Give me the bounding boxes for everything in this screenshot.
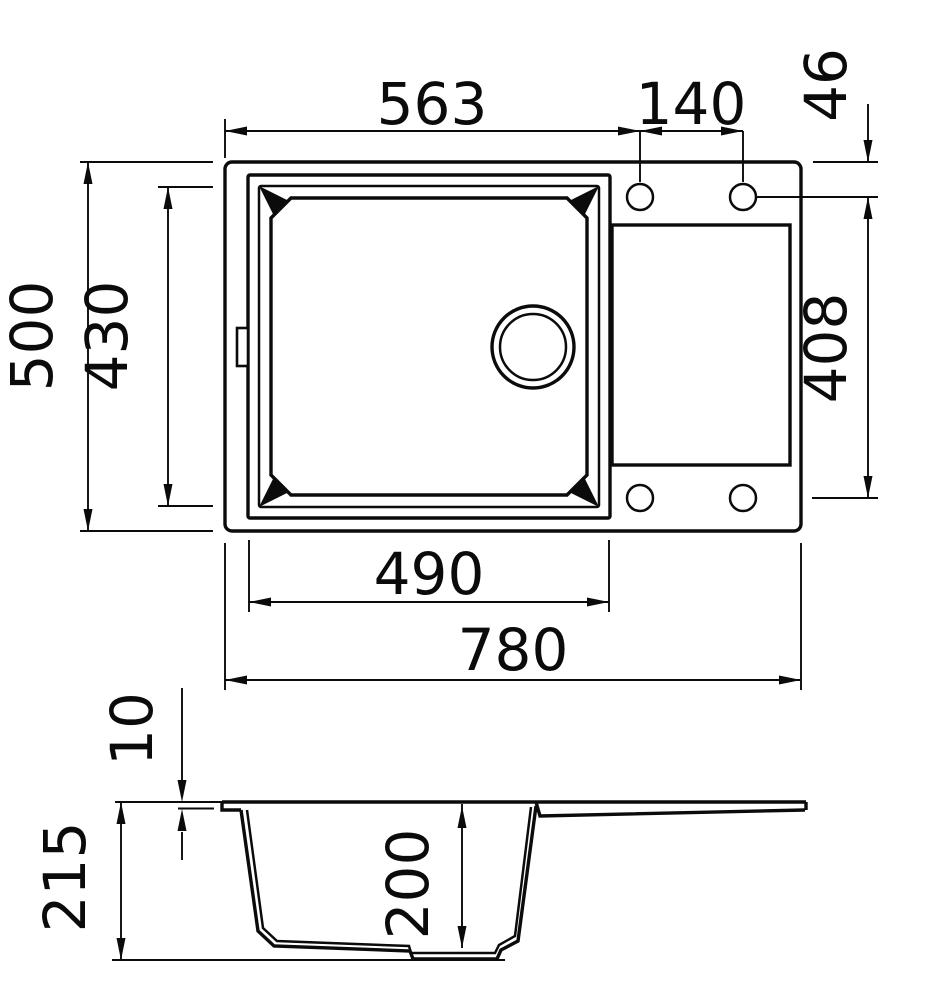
- drain-circle-inner: [500, 314, 566, 380]
- dim-10-arrow-down: [178, 780, 187, 802]
- dim-490-arrow-right: [587, 598, 609, 607]
- bowl-rim-outer: [248, 175, 610, 518]
- dim-215-arrow-down: [117, 938, 126, 960]
- dim-780-arrow-left: [225, 676, 247, 685]
- dim-200-arrow-down: [458, 926, 467, 948]
- dim-430-label: 430: [73, 281, 141, 392]
- drainboard-panel: [612, 225, 790, 465]
- dim-490-arrow-left: [249, 598, 271, 607]
- bowl-corner-facet-bl: [259, 479, 287, 507]
- dim-408-label: 408: [792, 293, 860, 404]
- bowl-corner-facet-br: [571, 479, 599, 507]
- dim-215-label: 215: [31, 822, 99, 933]
- dim-200-label: 200: [374, 829, 442, 940]
- drain-circle-outer: [492, 306, 574, 388]
- dim-215-arrow-up: [117, 802, 126, 824]
- dim-780-label: 780: [458, 616, 569, 684]
- technical-drawing-canvas: 563 140 46 408 500 430: [0, 0, 930, 1000]
- dim-10-label: 10: [98, 692, 166, 766]
- faucet-hole-top-right: [730, 184, 756, 210]
- dim-500-arrow-up: [84, 162, 93, 184]
- bowl-basin-octagon: [271, 198, 587, 495]
- dim-200-arrow-up: [458, 806, 467, 828]
- dim-780-arrow-right: [779, 676, 801, 685]
- top-view-dimensions: 563 140 46 408 500 430: [0, 48, 878, 690]
- overflow-marker: [237, 328, 248, 366]
- dim-46-arrow-down: [864, 140, 873, 162]
- faucet-hole-top-left: [627, 184, 653, 210]
- dim-430-arrow-down: [164, 484, 173, 506]
- dim-408-arrow-down: [864, 476, 873, 498]
- dim-563-arrow-left: [225, 127, 247, 136]
- dim-46-label: 46: [792, 48, 860, 122]
- sink-top-view: [225, 162, 801, 531]
- dim-140-label: 140: [636, 70, 747, 138]
- faucet-hole-bottom-right: [730, 485, 756, 511]
- dim-430-arrow-up: [164, 187, 173, 209]
- drainboard-section-underside: [536, 802, 805, 816]
- dim-500-arrow-down: [84, 509, 93, 531]
- dim-490-label: 490: [374, 540, 485, 608]
- faucet-hole-bottom-left: [627, 485, 653, 511]
- dim-500-label: 500: [0, 281, 66, 392]
- dim-10-arrow-up: [178, 809, 187, 831]
- bowl-corner-facet-tr: [571, 186, 599, 214]
- sink-outline: [225, 162, 801, 531]
- sink-drawing-svg: 563 140 46 408 500 430: [0, 0, 930, 1000]
- bowl-rim-step: [259, 186, 599, 507]
- dim-563-label: 563: [377, 70, 488, 138]
- bowl-corner-facet-tl: [259, 186, 287, 214]
